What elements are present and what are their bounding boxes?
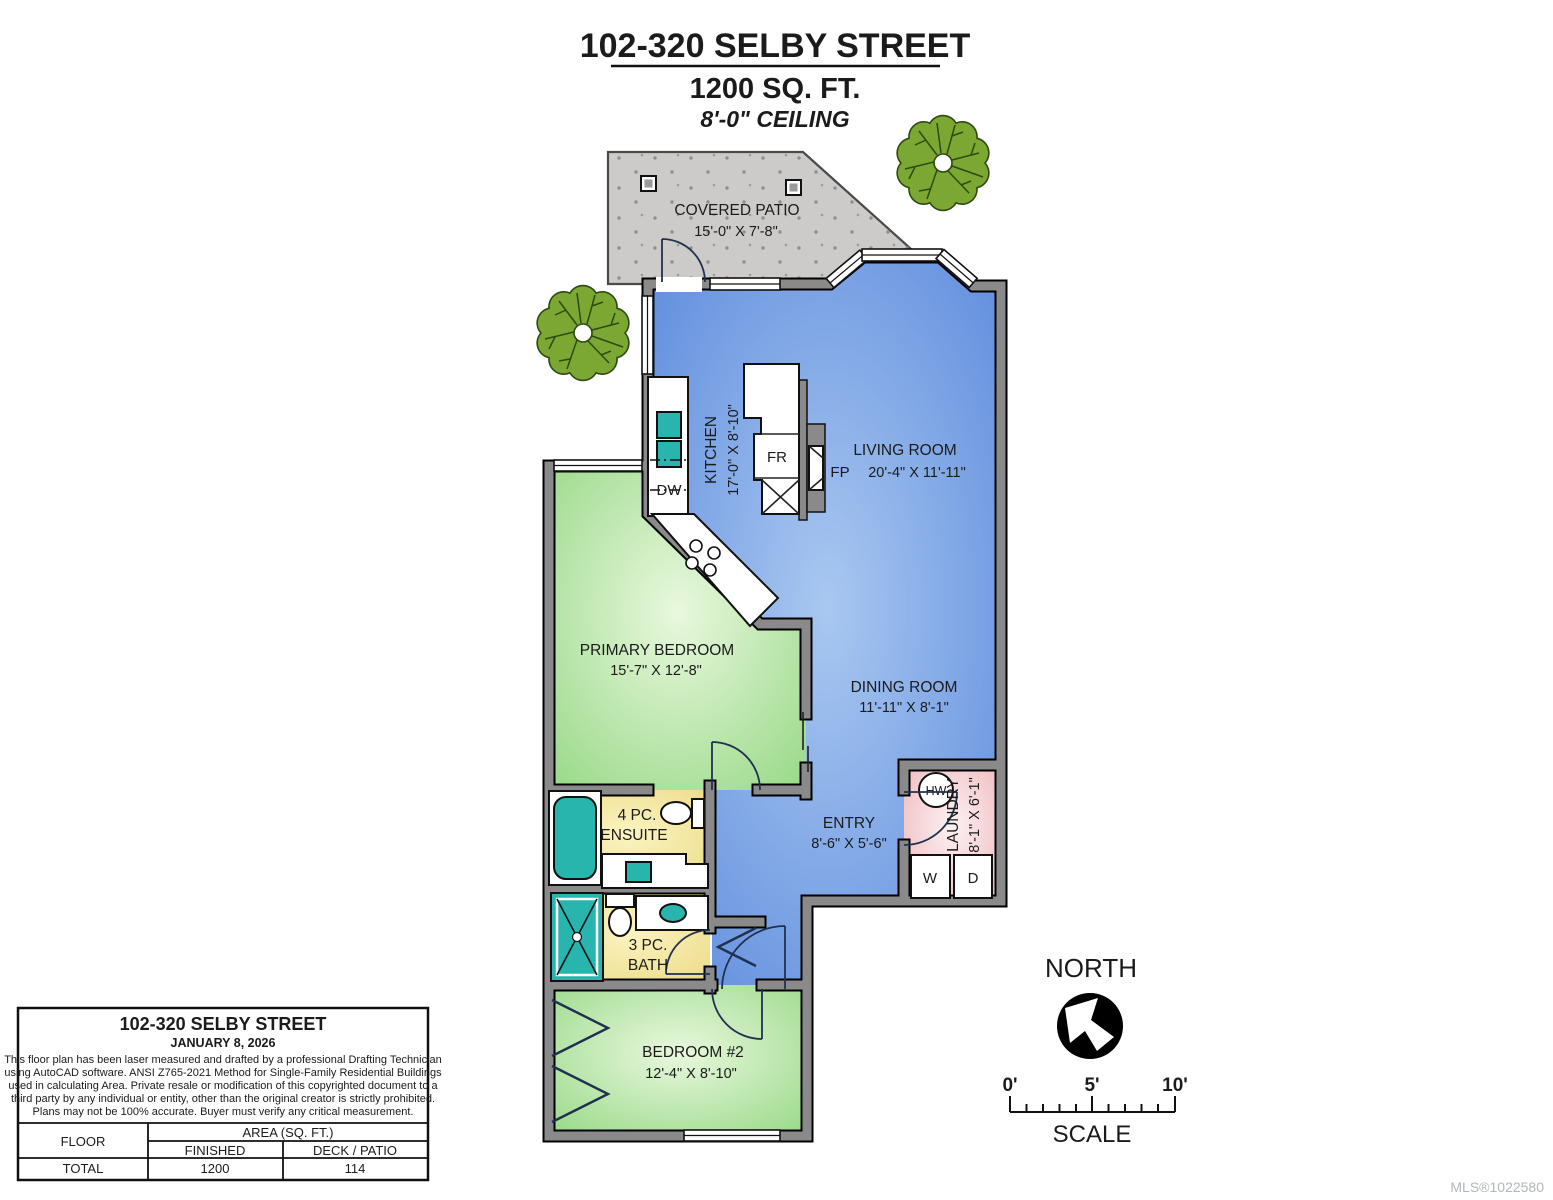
title-sqft: 1200 SQ. FT. [690, 73, 861, 105]
bath-sink [660, 904, 686, 922]
patio-dims: 15'-0" X 7'-8" [694, 224, 778, 240]
tree-icon [897, 116, 989, 211]
primary-name: PRIMARY BEDROOM [580, 642, 734, 659]
toilet-bowl [609, 908, 631, 936]
disclaimer-line: used in calculating Area. Private resale… [8, 1080, 438, 1092]
patio-post-core [790, 184, 798, 192]
living-name: LIVING ROOM [853, 442, 956, 459]
dining-name: DINING ROOM [851, 679, 958, 696]
kitchen-name: KITCHEN [703, 416, 720, 484]
north-label: NORTH [1045, 953, 1137, 983]
disclaimer-line: using AutoCAD software. ANSI Z765-2021 M… [4, 1067, 442, 1079]
kitchen-sink [657, 441, 681, 467]
dishwasher-label: DW [657, 482, 683, 499]
dining-dims: 11'-11" X 8'-1" [859, 700, 948, 716]
disclaimer-line: Plans may not be 100% accurate. Buyer mu… [33, 1106, 414, 1118]
kitchen-back-wall [799, 380, 807, 520]
disclaimer-line: This floor plan has been laser measured … [4, 1054, 442, 1066]
disclaimer-line: third party by any individual or entity,… [11, 1093, 435, 1105]
title-ceiling: 8'-0" CEILING [700, 106, 849, 132]
entry-name: ENTRY [823, 815, 875, 832]
floor-plan-page: 102-320 SELBY STREET 1200 SQ. FT. 8'-0" … [0, 0, 1553, 1200]
kitchen-sink [657, 412, 681, 438]
scale-bar: 0' 5' 10' SCALE [1002, 1075, 1187, 1148]
toilet-tank [606, 894, 634, 907]
living-dims: 20'-4" X 11'-11" [868, 465, 966, 481]
ensuite-line1: 4 PC. [618, 807, 657, 824]
washer-label: W [923, 870, 938, 887]
infobox-date: JANUARY 8, 2026 [171, 1036, 276, 1050]
compass: NORTH [1045, 953, 1137, 1059]
infobox-title: 102-320 SELBY STREET [120, 1014, 327, 1034]
dryer-label: D [968, 870, 979, 887]
floor-plan: 102-320 SELBY STREET 1200 SQ. FT. 8'-0" … [0, 0, 1553, 1200]
page-title: 102-320 SELBY STREET 1200 SQ. FT. 8'-0" … [580, 27, 971, 132]
bathtub [554, 797, 596, 879]
patio-name: COVERED PATIO [674, 202, 799, 219]
scale-tick-0: 0' [1002, 1075, 1017, 1096]
mls-watermark: MLS®1022580 [1450, 1179, 1544, 1195]
fridge-label: FR [767, 449, 787, 466]
table-finished-value: 1200 [201, 1161, 230, 1176]
tree-icon [537, 286, 629, 381]
table-floor-header: FLOOR [61, 1134, 106, 1149]
scale-label: SCALE [1053, 1121, 1132, 1148]
title-address: 102-320 SELBY STREET [580, 27, 971, 65]
patio-post-core [645, 180, 653, 188]
scale-tick-10: 10' [1162, 1075, 1188, 1096]
shower-drain [573, 933, 582, 942]
toilet-tank [692, 799, 704, 828]
table-deck-value: 114 [345, 1161, 366, 1176]
bath-line2: BATH [628, 957, 668, 974]
laundry-name: LAUNDRY [945, 778, 962, 852]
ensuite-line2: ENSUITE [600, 827, 667, 844]
hw-label: HW [926, 784, 947, 798]
table-deck-header: DECK / PATIO [313, 1143, 397, 1158]
toilet-bowl [661, 802, 691, 824]
ensuite-sink [626, 862, 651, 882]
primary-dims: 15'-7" X 12'-8" [610, 663, 702, 679]
entry-dims: 8'-6" X 5'-6" [811, 836, 886, 852]
scale-tick-5: 5' [1084, 1075, 1099, 1096]
bedroom2-dims: 12'-4" X 8'-10" [645, 1066, 737, 1082]
bath-line1: 3 PC. [629, 937, 668, 954]
table-area-header: AREA (SQ. FT.) [242, 1125, 333, 1140]
info-box: 102-320 SELBY STREET JANUARY 8, 2026 Thi… [4, 1008, 442, 1180]
kitchen-dims: 17'-0" X 8'-10" [726, 404, 742, 496]
fireplace-label: FP [830, 464, 849, 481]
table-total-label: TOTAL [63, 1161, 104, 1176]
bedroom2-name: BEDROOM #2 [642, 1044, 744, 1061]
table-finished-header: FINISHED [185, 1143, 246, 1158]
laundry-dims: 8'-1" X 6'-1" [967, 777, 983, 852]
